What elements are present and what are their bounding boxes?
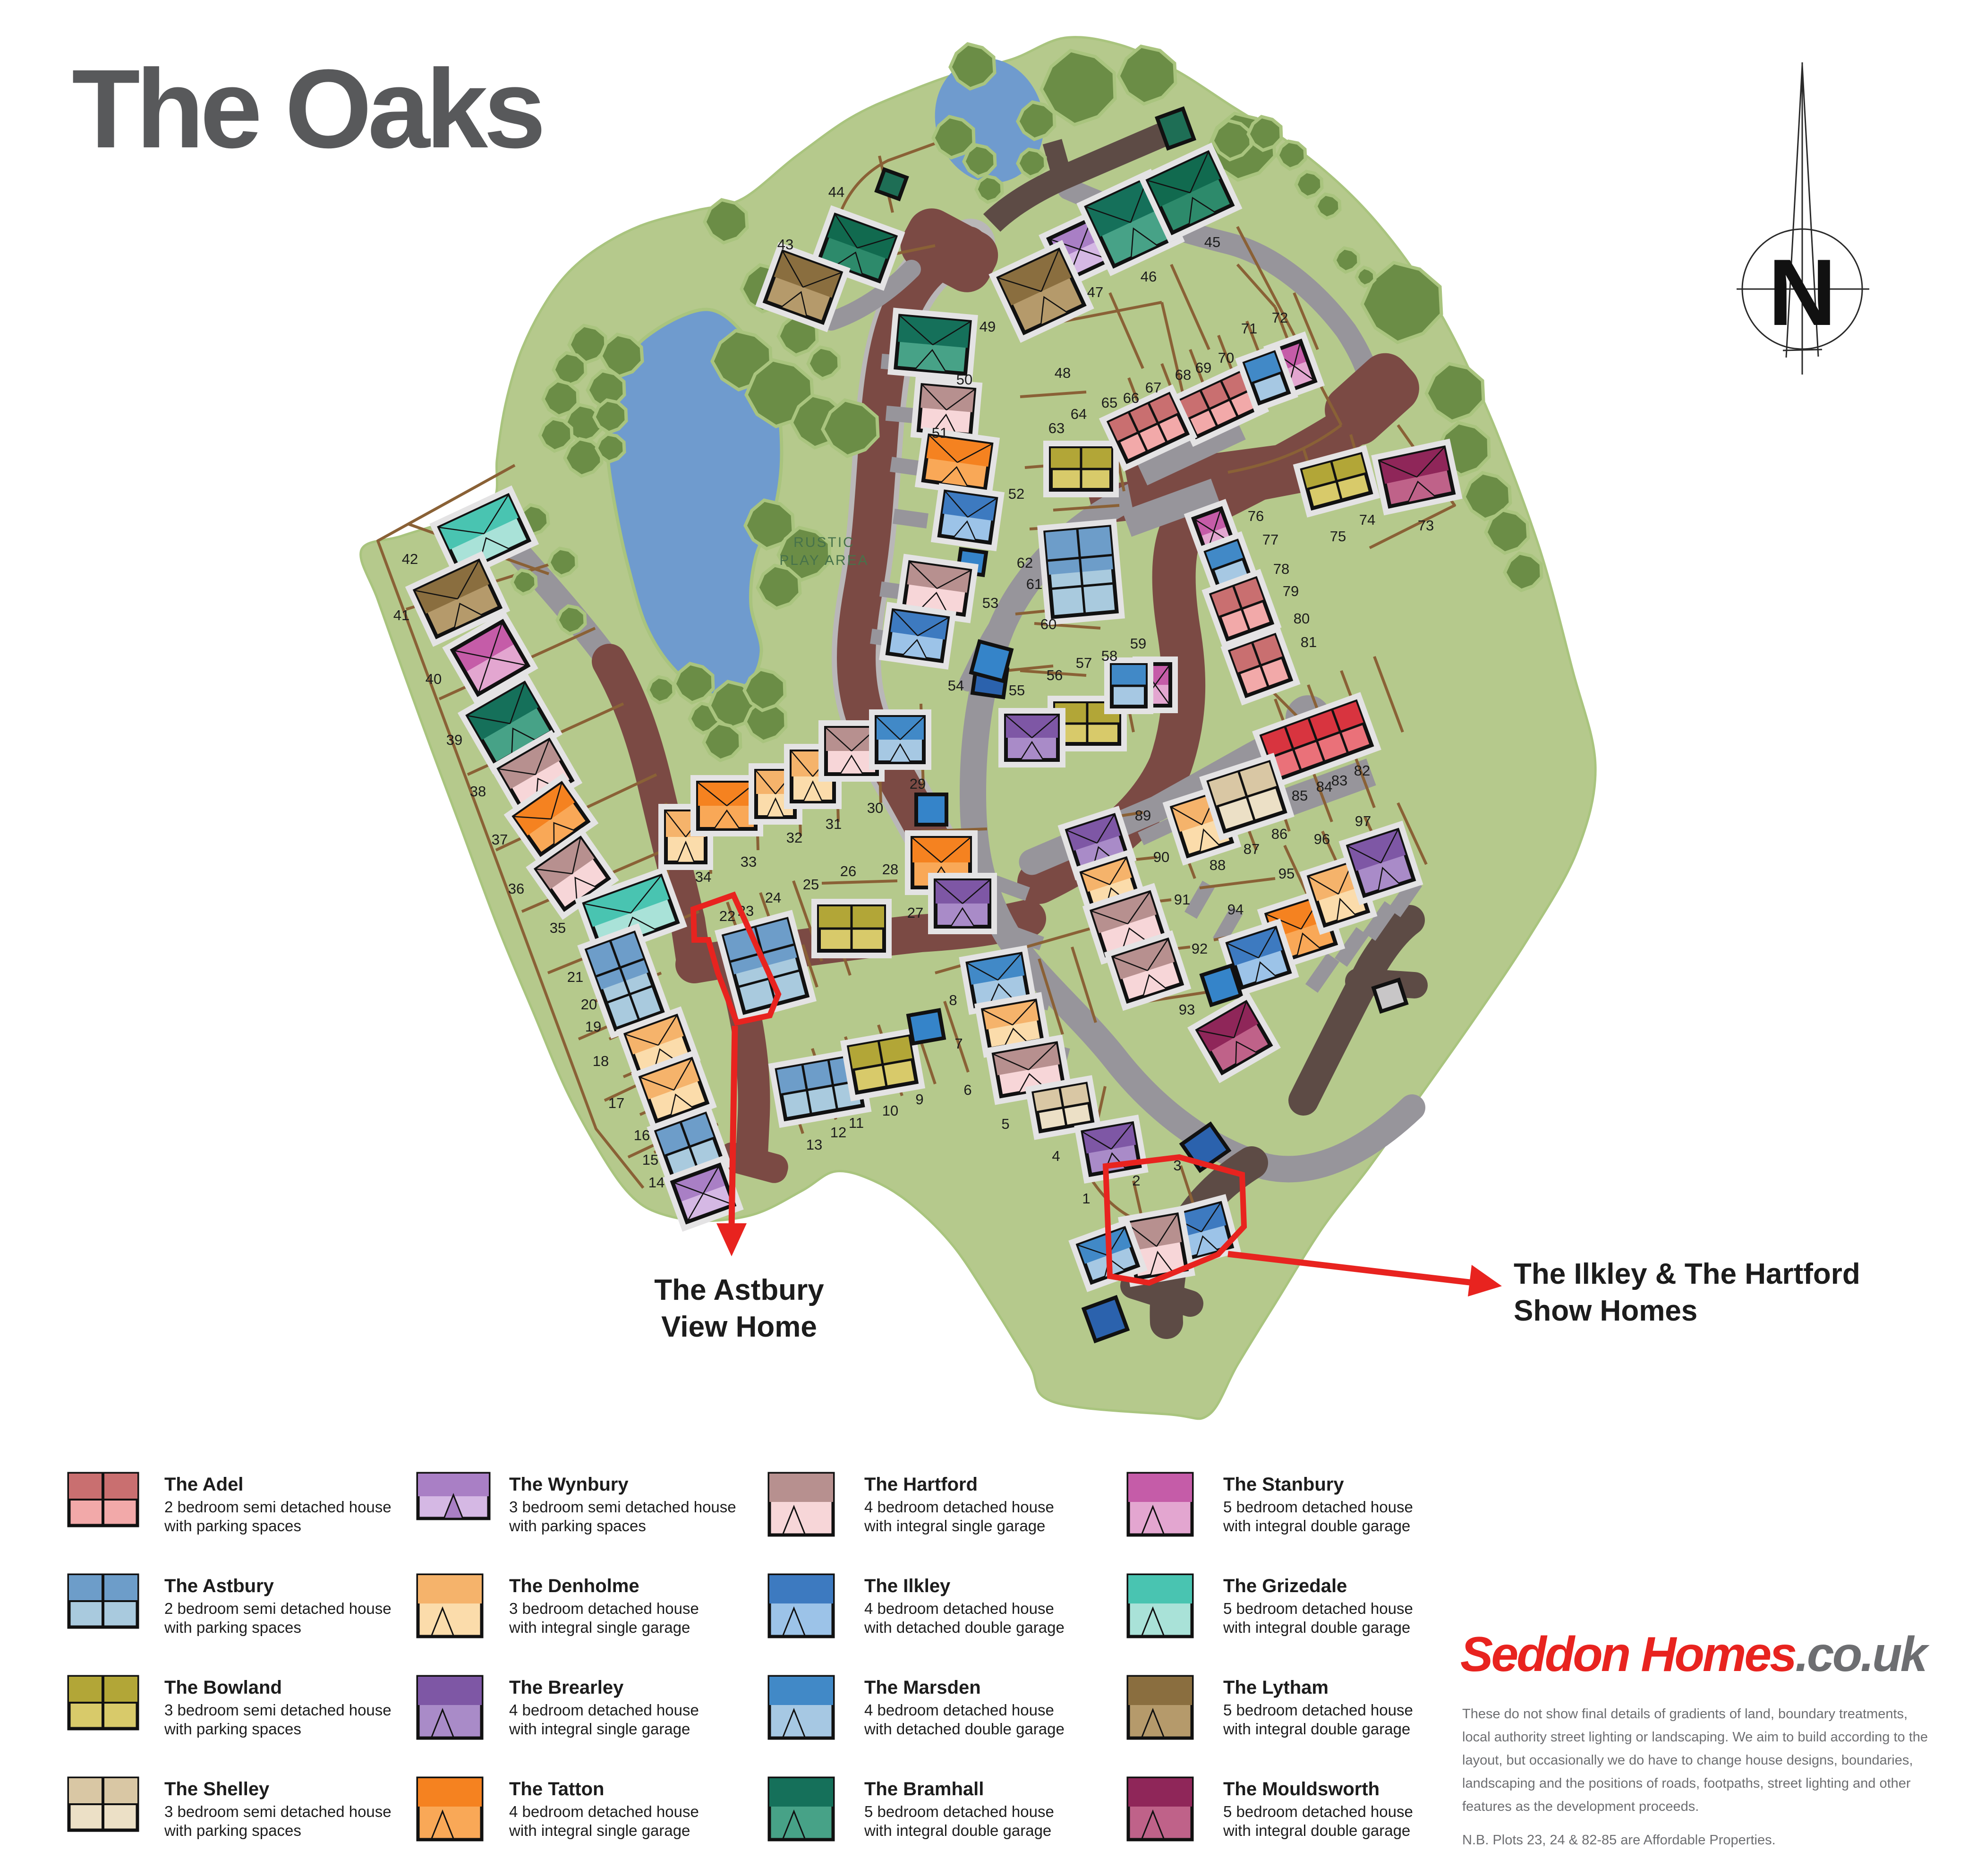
svg-text:44: 44	[828, 184, 844, 200]
svg-text:4 bedroom detached house: 4 bedroom detached house	[864, 1600, 1054, 1617]
svg-text:The Lytham: The Lytham	[1223, 1677, 1329, 1698]
svg-text:features as the development pr: features as the development proceeds.	[1462, 1799, 1699, 1814]
svg-text:30: 30	[867, 800, 883, 816]
svg-text:68: 68	[1175, 367, 1191, 383]
svg-text:29: 29	[910, 776, 926, 792]
svg-text:95: 95	[1278, 865, 1295, 882]
svg-text:83: 83	[1331, 772, 1347, 789]
svg-text:with integral double garage: with integral double garage	[1223, 1822, 1410, 1839]
svg-text:56: 56	[1047, 667, 1063, 683]
svg-text:33: 33	[741, 853, 757, 870]
svg-text:18: 18	[593, 1053, 609, 1069]
svg-text:4: 4	[1052, 1148, 1060, 1164]
svg-text:with parking spaces: with parking spaces	[164, 1822, 301, 1839]
svg-text:The Ilkley: The Ilkley	[864, 1576, 951, 1596]
svg-text:PLAY AREA: PLAY AREA	[779, 553, 869, 568]
svg-text:14: 14	[648, 1174, 665, 1191]
svg-text:The Oaks: The Oaks	[72, 46, 542, 171]
svg-text:6: 6	[963, 1082, 971, 1098]
svg-text:40: 40	[426, 671, 442, 687]
svg-text:5: 5	[1001, 1116, 1009, 1132]
svg-text:with integral single garage: with integral single garage	[509, 1822, 690, 1839]
svg-text:8: 8	[949, 992, 957, 1008]
svg-text:43: 43	[777, 236, 793, 253]
svg-text:20: 20	[581, 996, 597, 1013]
svg-text:Show Homes: Show Homes	[1514, 1295, 1697, 1327]
svg-text:The Wynbury: The Wynbury	[509, 1474, 629, 1495]
svg-text:The Adel: The Adel	[164, 1474, 243, 1495]
svg-text:90: 90	[1153, 849, 1169, 865]
svg-text:with detached double garage: with detached double garage	[864, 1720, 1065, 1738]
svg-text:66: 66	[1123, 390, 1139, 406]
svg-text:with integral double garage: with integral double garage	[864, 1822, 1051, 1839]
svg-text:76: 76	[1248, 508, 1264, 524]
svg-text:landscaping and the positions: landscaping and the positions of roads, …	[1462, 1776, 1911, 1791]
svg-text:21: 21	[567, 969, 583, 985]
svg-text:32: 32	[786, 829, 802, 846]
svg-text:13: 13	[806, 1136, 822, 1153]
svg-text:51: 51	[932, 425, 948, 441]
svg-text:62: 62	[1017, 554, 1033, 571]
svg-text:with integral double garage: with integral double garage	[1223, 1619, 1410, 1636]
svg-text:4 bedroom detached house: 4 bedroom detached house	[509, 1701, 699, 1719]
svg-text:71: 71	[1241, 320, 1257, 337]
svg-text:41: 41	[393, 607, 409, 623]
svg-text:35: 35	[550, 920, 566, 936]
svg-text:22: 22	[719, 908, 735, 924]
svg-text:77: 77	[1262, 531, 1278, 548]
svg-text:97: 97	[1355, 813, 1371, 829]
svg-text:47: 47	[1087, 284, 1103, 300]
svg-text:70: 70	[1218, 350, 1234, 366]
svg-text:N: N	[1768, 240, 1836, 345]
svg-text:58: 58	[1101, 648, 1117, 664]
svg-text:74: 74	[1359, 512, 1375, 528]
svg-text:with integral double garage: with integral double garage	[1223, 1720, 1410, 1738]
svg-text:2 bedroom semi detached house: 2 bedroom semi detached house	[164, 1498, 392, 1516]
svg-text:N.B. Plots 23, 24 & 82-85 are: N.B. Plots 23, 24 & 82-85 are Affordable…	[1462, 1833, 1776, 1848]
svg-text:37: 37	[492, 831, 508, 848]
svg-text:86: 86	[1271, 826, 1287, 842]
svg-text:72: 72	[1272, 309, 1288, 326]
svg-text:with parking spaces: with parking spaces	[164, 1517, 301, 1535]
svg-text:73: 73	[1418, 517, 1434, 534]
svg-text:75: 75	[1330, 528, 1346, 545]
svg-text:3 bedroom detached house: 3 bedroom detached house	[509, 1600, 699, 1617]
svg-text:4 bedroom detached house: 4 bedroom detached house	[509, 1803, 699, 1820]
svg-text:63: 63	[1048, 420, 1065, 436]
svg-text:26: 26	[840, 863, 856, 879]
svg-text:The Grizedale: The Grizedale	[1223, 1576, 1347, 1596]
svg-text:5 bedroom detached house: 5 bedroom detached house	[1223, 1600, 1413, 1617]
svg-text:RUSTIC: RUSTIC	[793, 535, 855, 550]
svg-text:The Hartford: The Hartford	[864, 1474, 978, 1495]
svg-text:60: 60	[1040, 616, 1056, 632]
svg-text:78: 78	[1273, 561, 1289, 577]
svg-text:11: 11	[849, 1115, 864, 1131]
svg-text:45: 45	[1204, 234, 1220, 250]
svg-text:31: 31	[826, 816, 842, 832]
svg-text:38: 38	[470, 783, 486, 800]
svg-text:48: 48	[1055, 365, 1071, 381]
svg-text:85: 85	[1292, 787, 1308, 804]
svg-text:39: 39	[446, 732, 462, 748]
svg-text:layout, but occasionally we do: layout, but occasionally we do have to c…	[1462, 1753, 1913, 1768]
svg-text:The Mouldsworth: The Mouldsworth	[1223, 1779, 1380, 1799]
svg-text:81: 81	[1301, 634, 1317, 650]
svg-text:with parking spaces: with parking spaces	[509, 1517, 646, 1535]
svg-text:with parking spaces: with parking spaces	[164, 1619, 301, 1636]
svg-text:28: 28	[882, 861, 898, 878]
svg-text:The Marsden: The Marsden	[864, 1677, 981, 1698]
svg-text:5 bedroom detached house: 5 bedroom detached house	[1223, 1701, 1413, 1719]
svg-text:4 bedroom detached house: 4 bedroom detached house	[864, 1498, 1054, 1516]
svg-text:The Bramhall: The Bramhall	[864, 1779, 984, 1799]
svg-text:57: 57	[1076, 655, 1092, 671]
svg-text:The Denholme: The Denholme	[509, 1576, 639, 1596]
svg-text:with integral single garage: with integral single garage	[509, 1720, 690, 1738]
svg-text:82: 82	[1354, 762, 1370, 779]
svg-text:52: 52	[1008, 486, 1024, 502]
svg-text:84: 84	[1316, 778, 1332, 795]
svg-text:65: 65	[1101, 394, 1117, 411]
svg-text:59: 59	[1130, 635, 1146, 652]
svg-text:5 bedroom detached house: 5 bedroom detached house	[864, 1803, 1054, 1820]
svg-text:The Astbury: The Astbury	[654, 1274, 824, 1306]
svg-text:3 bedroom semi detached house: 3 bedroom semi detached house	[164, 1701, 392, 1719]
svg-text:49: 49	[980, 318, 996, 335]
svg-text:64: 64	[1071, 406, 1087, 422]
svg-text:3 bedroom semi detached house: 3 bedroom semi detached house	[509, 1498, 736, 1516]
svg-text:89: 89	[1135, 807, 1151, 824]
svg-text:The Shelley: The Shelley	[164, 1779, 270, 1799]
svg-text:36: 36	[508, 880, 524, 897]
svg-text:42: 42	[402, 551, 418, 567]
svg-text:2 bedroom semi detached house: 2 bedroom semi detached house	[164, 1600, 392, 1617]
svg-text:46: 46	[1141, 268, 1157, 285]
svg-text:93: 93	[1179, 1001, 1195, 1018]
svg-text:The Astbury: The Astbury	[164, 1576, 274, 1596]
svg-text:67: 67	[1145, 379, 1161, 396]
svg-text:24: 24	[765, 889, 781, 906]
svg-text:Seddon Homes.co.uk: Seddon Homes.co.uk	[1460, 1627, 1930, 1682]
svg-text:The Bowland: The Bowland	[164, 1677, 282, 1698]
svg-text:1: 1	[1082, 1190, 1090, 1207]
svg-text:87: 87	[1244, 841, 1260, 857]
svg-text:The Ilkley & The Hartford: The Ilkley & The Hartford	[1514, 1258, 1860, 1290]
svg-text:The Brearley: The Brearley	[509, 1677, 624, 1698]
svg-text:17: 17	[608, 1095, 624, 1111]
svg-text:16: 16	[634, 1127, 650, 1143]
svg-text:69: 69	[1195, 359, 1211, 376]
svg-text:with integral single garage: with integral single garage	[864, 1517, 1045, 1535]
svg-text:9: 9	[915, 1091, 923, 1108]
svg-text:50: 50	[956, 371, 972, 388]
svg-text:7: 7	[954, 1035, 963, 1052]
svg-text:local authority street lightin: local authority street lighting or lands…	[1462, 1730, 1928, 1745]
svg-text:53: 53	[982, 595, 998, 611]
svg-text:34: 34	[695, 869, 711, 885]
svg-text:80: 80	[1294, 610, 1310, 627]
svg-text:with integral single garage: with integral single garage	[509, 1619, 690, 1636]
svg-text:5 bedroom detached house: 5 bedroom detached house	[1223, 1803, 1413, 1820]
svg-text:61: 61	[1026, 576, 1042, 592]
svg-text:12: 12	[830, 1124, 846, 1141]
svg-text:27: 27	[907, 904, 923, 921]
svg-text:5 bedroom detached house: 5 bedroom detached house	[1223, 1498, 1413, 1516]
svg-text:92: 92	[1192, 940, 1208, 957]
svg-text:2: 2	[1132, 1172, 1140, 1189]
svg-text:with integral double garage: with integral double garage	[1223, 1517, 1410, 1535]
svg-text:19: 19	[585, 1018, 601, 1035]
svg-text:3 bedroom semi detached house: 3 bedroom semi detached house	[164, 1803, 392, 1820]
svg-text:The Stanbury: The Stanbury	[1223, 1474, 1344, 1495]
svg-text:54: 54	[948, 677, 964, 694]
svg-text:55: 55	[1009, 682, 1025, 699]
svg-text:View Home: View Home	[661, 1311, 817, 1343]
svg-text:10: 10	[882, 1102, 898, 1119]
svg-text:These do not show final detail: These do not show final details of gradi…	[1462, 1706, 1908, 1722]
svg-text:with parking spaces: with parking spaces	[164, 1720, 301, 1738]
svg-text:25: 25	[803, 876, 819, 893]
svg-text:88: 88	[1210, 857, 1226, 873]
svg-text:with detached double garage: with detached double garage	[864, 1619, 1065, 1636]
svg-text:79: 79	[1283, 583, 1299, 599]
svg-text:94: 94	[1227, 901, 1244, 918]
svg-text:96: 96	[1314, 831, 1330, 847]
svg-text:4 bedroom detached house: 4 bedroom detached house	[864, 1701, 1054, 1719]
svg-text:The Tatton: The Tatton	[509, 1779, 604, 1799]
svg-text:91: 91	[1174, 891, 1190, 908]
svg-text:15: 15	[642, 1151, 658, 1168]
